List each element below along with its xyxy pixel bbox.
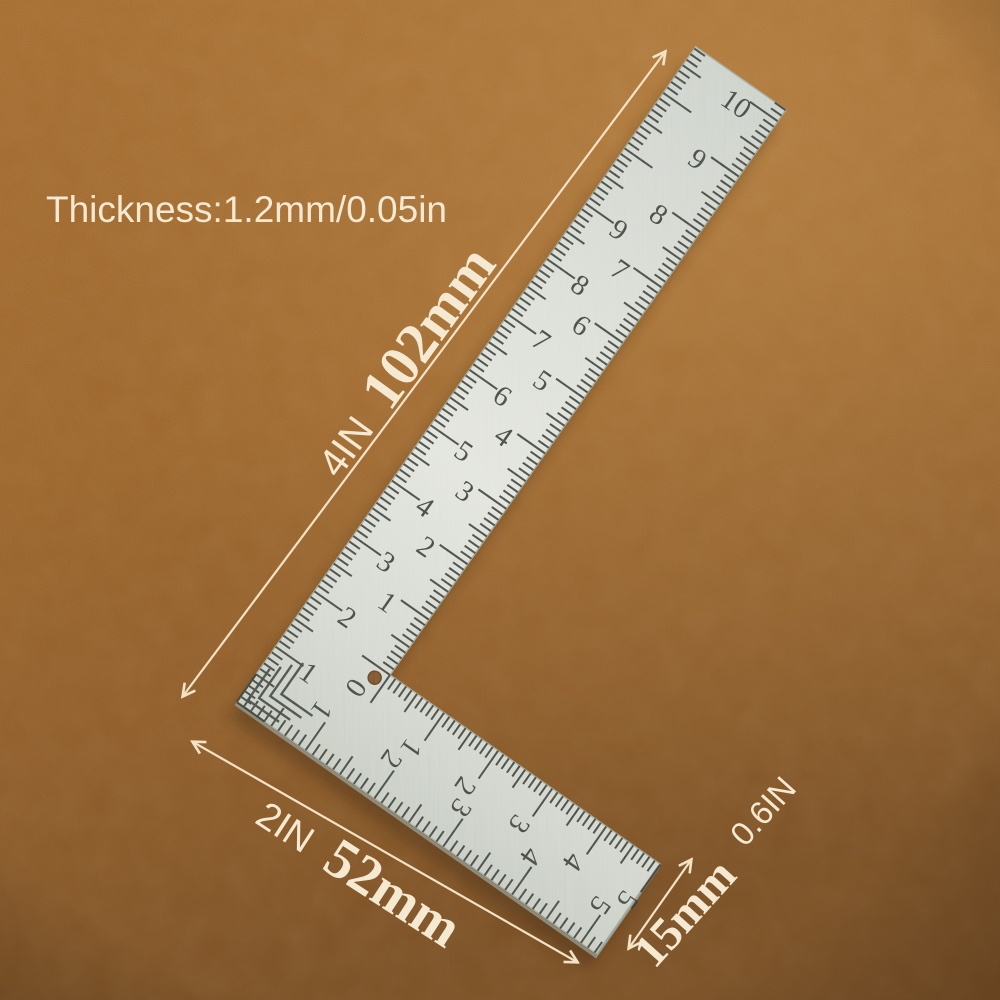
product-photo-canvas: 0123456789101234567891234512345 Thicknes… xyxy=(0,0,1000,1000)
thickness-label: Thickness:1.2mm/0.05in xyxy=(46,189,447,230)
product-photo: 0123456789101234567891234512345 Thicknes… xyxy=(0,0,1000,1000)
